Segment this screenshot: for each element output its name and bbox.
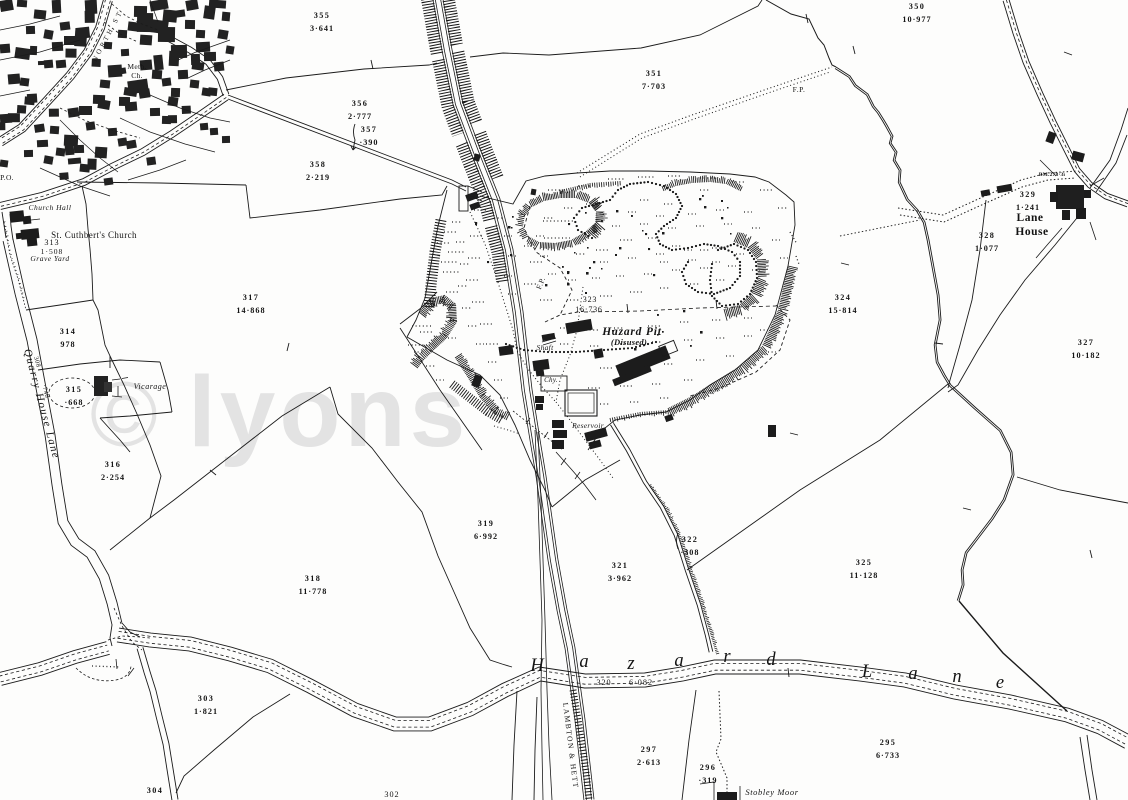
svg-text:325: 325 xyxy=(856,558,872,567)
svg-text:321: 321 xyxy=(612,561,628,570)
svg-text:e: e xyxy=(996,673,1004,693)
svg-text:11·128: 11·128 xyxy=(850,571,879,580)
svg-text:358: 358 xyxy=(310,160,326,169)
svg-text:978: 978 xyxy=(60,340,75,349)
svg-text:2·219: 2·219 xyxy=(306,173,330,182)
svg-text:H: H xyxy=(529,656,545,676)
svg-text:2·613: 2·613 xyxy=(637,758,661,767)
svg-text:316: 316 xyxy=(105,460,121,469)
svg-text:320: 320 xyxy=(596,678,611,687)
svg-text:Meth.: Meth. xyxy=(127,62,146,71)
svg-text:1·077: 1·077 xyxy=(975,244,999,253)
svg-text:(Disused): (Disused) xyxy=(611,337,647,347)
svg-text:295: 295 xyxy=(880,738,896,747)
svg-text:355: 355 xyxy=(314,11,330,20)
svg-text:n: n xyxy=(952,667,961,687)
svg-text:1·821: 1·821 xyxy=(194,707,218,716)
svg-text:10·977: 10·977 xyxy=(902,15,931,24)
svg-text:3·641: 3·641 xyxy=(310,24,334,33)
svg-text:Church Hall: Church Hall xyxy=(29,203,72,212)
svg-text:314: 314 xyxy=(60,327,76,336)
svg-text:a: a xyxy=(674,651,683,671)
svg-text:·668: ·668 xyxy=(64,398,83,407)
svg-text:350: 350 xyxy=(909,2,925,11)
svg-text:302: 302 xyxy=(384,790,399,799)
svg-text:318: 318 xyxy=(305,574,321,583)
svg-text:327: 327 xyxy=(1078,338,1094,347)
svg-text:Reservoir: Reservoir xyxy=(571,421,604,430)
svg-text:Grave Yard: Grave Yard xyxy=(30,254,69,263)
svg-text:1·241: 1·241 xyxy=(1016,203,1040,212)
svg-text:315: 315 xyxy=(66,385,82,394)
svg-text:2·777: 2·777 xyxy=(348,112,372,121)
svg-text:2·254: 2·254 xyxy=(101,473,125,482)
svg-text:7·703: 7·703 xyxy=(642,82,666,91)
svg-text:lyons: lyons xyxy=(188,356,469,468)
svg-text:296: 296 xyxy=(700,763,716,772)
svg-text:319: 319 xyxy=(478,519,494,528)
svg-text:11·778: 11·778 xyxy=(299,587,328,596)
svg-text:16·736: 16·736 xyxy=(575,305,602,314)
svg-text:15·814: 15·814 xyxy=(828,306,857,315)
svg-text:P.O.: P.O. xyxy=(0,173,14,182)
svg-text:BM.278·3ɪ: BM.278·3ɪ xyxy=(1039,172,1066,178)
svg-text:323: 323 xyxy=(583,295,597,304)
svg-text:Stobley Moor: Stobley Moor xyxy=(745,787,798,797)
svg-text:Chy.: Chy. xyxy=(544,376,558,384)
svg-text:·390: ·390 xyxy=(359,138,378,147)
svg-text:356: 356 xyxy=(352,99,368,108)
svg-text:Ch.: Ch. xyxy=(131,71,143,80)
svg-text:357: 357 xyxy=(361,125,377,134)
svg-text:304: 304 xyxy=(147,786,163,795)
svg-text:6·992: 6·992 xyxy=(474,532,498,541)
svg-text:d: d xyxy=(766,650,776,670)
svg-text:328: 328 xyxy=(979,231,995,240)
svg-text:329: 329 xyxy=(1020,190,1036,199)
svg-text:House: House xyxy=(1015,226,1048,238)
svg-text:3·962: 3·962 xyxy=(608,574,632,583)
svg-text:a: a xyxy=(908,664,917,684)
svg-text:Lane: Lane xyxy=(1017,212,1044,224)
svg-text:Vicarage: Vicarage xyxy=(134,382,167,391)
svg-text:a: a xyxy=(579,652,588,672)
svg-text:10·182: 10·182 xyxy=(1071,351,1100,360)
svg-text:351: 351 xyxy=(646,69,662,78)
svg-text:303: 303 xyxy=(198,694,214,703)
svg-text:322: 322 xyxy=(682,535,698,544)
svg-text:r: r xyxy=(723,647,731,667)
svg-text:14·868: 14·868 xyxy=(236,306,265,315)
svg-text:6·733: 6·733 xyxy=(876,751,900,760)
svg-text:297: 297 xyxy=(641,745,657,754)
svg-text:St. Cuthbert's Church: St. Cuthbert's Church xyxy=(51,230,137,240)
svg-text:317: 317 xyxy=(243,293,259,302)
svg-text:L: L xyxy=(861,662,872,682)
svg-text:324: 324 xyxy=(835,293,851,302)
svg-text:·308: ·308 xyxy=(680,548,699,557)
svg-text:F.P.: F.P. xyxy=(793,85,806,94)
svg-text:6·082: 6·082 xyxy=(629,678,653,687)
svg-text:Shaft: Shaft xyxy=(537,343,555,352)
svg-text:z: z xyxy=(626,654,634,674)
